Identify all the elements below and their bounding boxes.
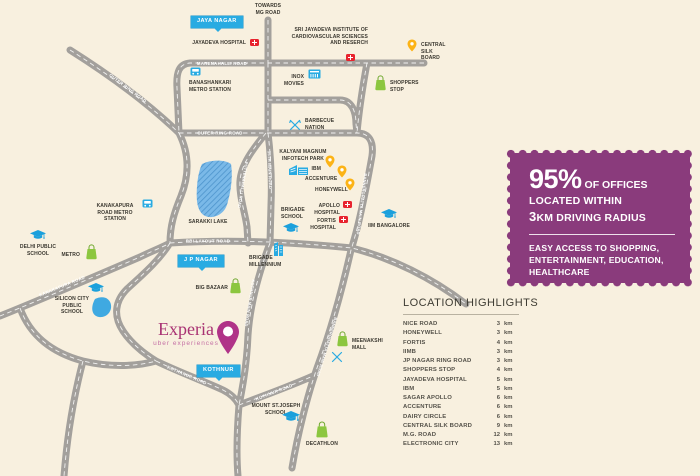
highlight-unit: km xyxy=(500,405,517,411)
highlight-unit: km xyxy=(500,378,517,384)
landmark-decathlon: DECATHLON xyxy=(299,441,345,448)
highlight-row: CENTRAL SILK BOARD9km xyxy=(403,424,517,430)
highlight-name: JAYADEVA HOSPITAL xyxy=(403,378,487,384)
road-label-kothnur: KOTHNUR ROAD xyxy=(255,383,293,402)
highlight-unit: km xyxy=(500,350,517,356)
offices-stat-line: 95%OF OFFICES xyxy=(529,164,675,195)
title-underline xyxy=(403,314,519,315)
shopping-bag-icon xyxy=(229,278,242,294)
map-pin-icon xyxy=(325,155,335,168)
offices-line-3: 3KM DRIVING RADIUS xyxy=(529,209,675,226)
highlight-name: M.G. ROAD xyxy=(403,433,487,439)
highlight-unit: km xyxy=(500,396,517,402)
road-label-rbi-layout: RBI LAYOUT ROAD xyxy=(186,239,230,244)
sarakki-lake-shape xyxy=(197,161,232,217)
office-building-icon xyxy=(273,240,284,256)
location-highlights-list: NICE ROAD3km HONEYWELL3km FORTIS4km IIMB… xyxy=(403,322,517,448)
highlight-unit: km xyxy=(500,322,517,328)
highlight-row: HONEYWELL3km xyxy=(403,331,517,337)
highlight-name: ACCENTURE xyxy=(403,405,487,411)
map-pin-icon xyxy=(337,165,347,178)
area-badge-jp-nagar: J P NAGAR xyxy=(178,255,224,267)
road-label-bannerghatta-2: BANNERGHATTA MAIN ROAD xyxy=(316,317,339,377)
location-map-page: MARENAHALLI ROAD OUTER RING ROAD OUTER R… xyxy=(0,0,700,476)
highlight-distance: 6 xyxy=(487,405,500,411)
cinema-icon xyxy=(308,69,321,79)
graduation-cap-icon xyxy=(282,411,300,423)
restaurant-utensils-icon xyxy=(289,119,301,131)
highlight-distance: 6 xyxy=(487,396,500,402)
card-divider xyxy=(529,234,675,235)
highlight-name: SAGAR APOLLO xyxy=(403,396,487,402)
graduation-cap-icon xyxy=(381,209,397,220)
map-pin-icon xyxy=(407,39,417,52)
highlight-row: NICE ROAD3km xyxy=(403,322,517,328)
highlight-distance: 4 xyxy=(487,368,500,374)
highlight-unit: km xyxy=(500,442,517,448)
project-tagline: uber experiences xyxy=(150,340,222,347)
hospital-cross-icon xyxy=(339,216,348,223)
landmark-delhi-public-school: DELHI PUBLIC SCHOOL xyxy=(18,244,58,257)
highlight-row: SAGAR APOLLO6km xyxy=(403,396,517,402)
highlight-unit: km xyxy=(500,368,517,374)
highlight-row: IBM5km xyxy=(403,387,517,393)
highlight-distance: 9 xyxy=(487,424,500,430)
road-label-outer-ring-diagonal: OUTER RING ROAD xyxy=(108,72,147,103)
highlight-row: ELECTRONIC CITY13km xyxy=(403,442,517,448)
highlight-row: DAIRY CIRCLE6km xyxy=(403,415,517,421)
pond-shape xyxy=(92,297,111,317)
landmark-big-bazaar: BIG BAZAAR xyxy=(194,285,228,292)
highlight-name: IIMB xyxy=(403,350,487,356)
landmark-accenture: ACCENTURE xyxy=(305,176,337,183)
highlight-name: SHOPPERS STOP xyxy=(403,368,487,374)
landmark-sarakki-lake: SARAKKI LAKE xyxy=(186,219,230,226)
highlight-name: HONEYWELL xyxy=(403,331,487,337)
area-badge-jaya-nagar: JAYA NAGAR xyxy=(191,16,243,28)
highlight-name: FORTIS xyxy=(403,341,487,347)
graduation-cap-icon xyxy=(283,223,299,234)
highlight-distance: 3 xyxy=(487,322,500,328)
easy-access-text: EASY ACCESS TO SHOPPING, ENTERTAINMENT, … xyxy=(529,242,675,279)
location-highlights-panel: LOCATION HIGHLIGHTS NICE ROAD3km HONEYWE… xyxy=(403,297,553,448)
radius-text: KM DRIVING RADIUS xyxy=(536,212,646,224)
highlight-distance: 5 xyxy=(487,387,500,393)
offices-info-card: 95%OF OFFICES LOCATED WITHIN 3KM DRIVING… xyxy=(505,148,695,288)
highlight-distance: 12 xyxy=(487,433,500,439)
highlight-unit: km xyxy=(500,433,517,439)
project-logo: Experia uber experiences xyxy=(150,320,222,347)
project-location-pin-icon xyxy=(215,320,241,356)
shopping-bag-icon xyxy=(315,421,329,438)
highlight-name: JP NAGAR RING ROAD xyxy=(403,359,487,365)
shopping-bag-icon xyxy=(374,75,387,91)
highlight-name: NICE ROAD xyxy=(403,322,487,328)
landmark-sri-jayadeva-institute: SRI JAYADEVA INSTITUTE OF CARDIOVASCULAR… xyxy=(288,27,368,47)
landmark-inox-movies: INOX MOVIES xyxy=(270,74,304,87)
highlight-distance: 3 xyxy=(487,331,500,337)
offices-stat-suffix: OF OFFICES xyxy=(585,179,648,191)
highlight-distance: 4 xyxy=(487,341,500,347)
graduation-cap-icon xyxy=(88,283,104,294)
highlight-row: FORTIS4km xyxy=(403,341,517,347)
hospital-cross-icon xyxy=(343,201,352,208)
landmark-brigade-millennium: BRIGADE MILLENNIUM xyxy=(249,255,289,268)
highlight-distance: 3 xyxy=(487,350,500,356)
road-label-marenahalli: MARENAHALLI ROAD xyxy=(197,61,247,66)
landmark-jayadeva-hospital: JAYADEVA HOSPITAL xyxy=(186,40,246,47)
highlight-row: JAYADEVA HOSPITAL5km xyxy=(403,378,517,384)
restaurant-utensils-icon xyxy=(331,351,343,363)
offices-stat-value: 95% xyxy=(529,164,582,194)
landmark-silicon-city-school: SILICON CITY PUBLIC SCHOOL xyxy=(51,296,93,316)
highlight-unit: km xyxy=(500,387,517,393)
metro-icon xyxy=(190,67,201,77)
highlight-unit: km xyxy=(500,424,517,430)
highlight-name: DAIRY CIRCLE xyxy=(403,415,487,421)
landmark-brigade-school: BRIGADE SCHOOL xyxy=(281,207,307,220)
highlight-row: JP NAGAR RING ROAD3km xyxy=(403,359,517,365)
location-highlights-title: LOCATION HIGHLIGHTS xyxy=(403,297,553,309)
highlight-name: CENTRAL SILK BOARD xyxy=(403,424,487,430)
road-label-outer-ring: OUTER RING ROAD xyxy=(197,131,242,136)
landmark-meenakshi-mall: MEENAKSHI MALL xyxy=(352,338,388,351)
highlight-row: ACCENTURE6km xyxy=(403,405,517,411)
direction-label-mg-road: TOWARDS MG ROAD xyxy=(251,3,285,16)
highlight-unit: km xyxy=(500,341,517,347)
landmark-honeywell: HONEYWELL xyxy=(315,187,345,194)
landmark-ibm: IBM xyxy=(303,166,321,173)
highlight-unit: km xyxy=(500,415,517,421)
highlight-distance: 13 xyxy=(487,442,500,448)
landmark-iim-bangalore: IIM BANGALORE xyxy=(366,223,412,230)
highlight-unit: km xyxy=(500,359,517,365)
landmark-metro-store: METRO xyxy=(56,252,80,259)
shopping-bag-icon xyxy=(85,244,98,260)
shopping-bag-icon xyxy=(336,331,349,347)
metro-icon xyxy=(142,199,153,209)
highlight-row: M.G. ROAD12km xyxy=(403,433,517,439)
landmark-banashankari-metro: BANASHANKARI METRO STATION xyxy=(189,80,233,93)
project-name: Experia xyxy=(150,320,222,338)
graduation-cap-icon xyxy=(30,230,46,241)
highlight-distance: 6 xyxy=(487,415,500,421)
landmark-shoppers-stop: SHOPPERS STOP xyxy=(390,80,420,93)
highlight-row: IIMB3km xyxy=(403,350,517,356)
landmark-barbecue-nation: BARBECUE NATION xyxy=(305,118,335,131)
highlight-distance: 3 xyxy=(487,359,500,365)
landmark-central-silk-board: CENTRAL SILK BOARD xyxy=(421,42,451,62)
hospital-cross-icon xyxy=(250,39,259,46)
hospital-cross-icon xyxy=(346,54,355,61)
highlight-row: SHOPPERS STOP4km xyxy=(403,368,517,374)
offices-line-2: LOCATED WITHIN xyxy=(529,195,675,209)
highlight-distance: 5 xyxy=(487,378,500,384)
area-badge-kothnur: KOTHNUR xyxy=(197,365,240,377)
highlight-unit: km xyxy=(500,331,517,337)
highlight-name: ELECTRONIC CITY xyxy=(403,442,487,448)
highlight-name: IBM xyxy=(403,387,487,393)
landmark-kanakapura-metro: KANAKAPURA ROAD METRO STATION xyxy=(90,203,140,223)
